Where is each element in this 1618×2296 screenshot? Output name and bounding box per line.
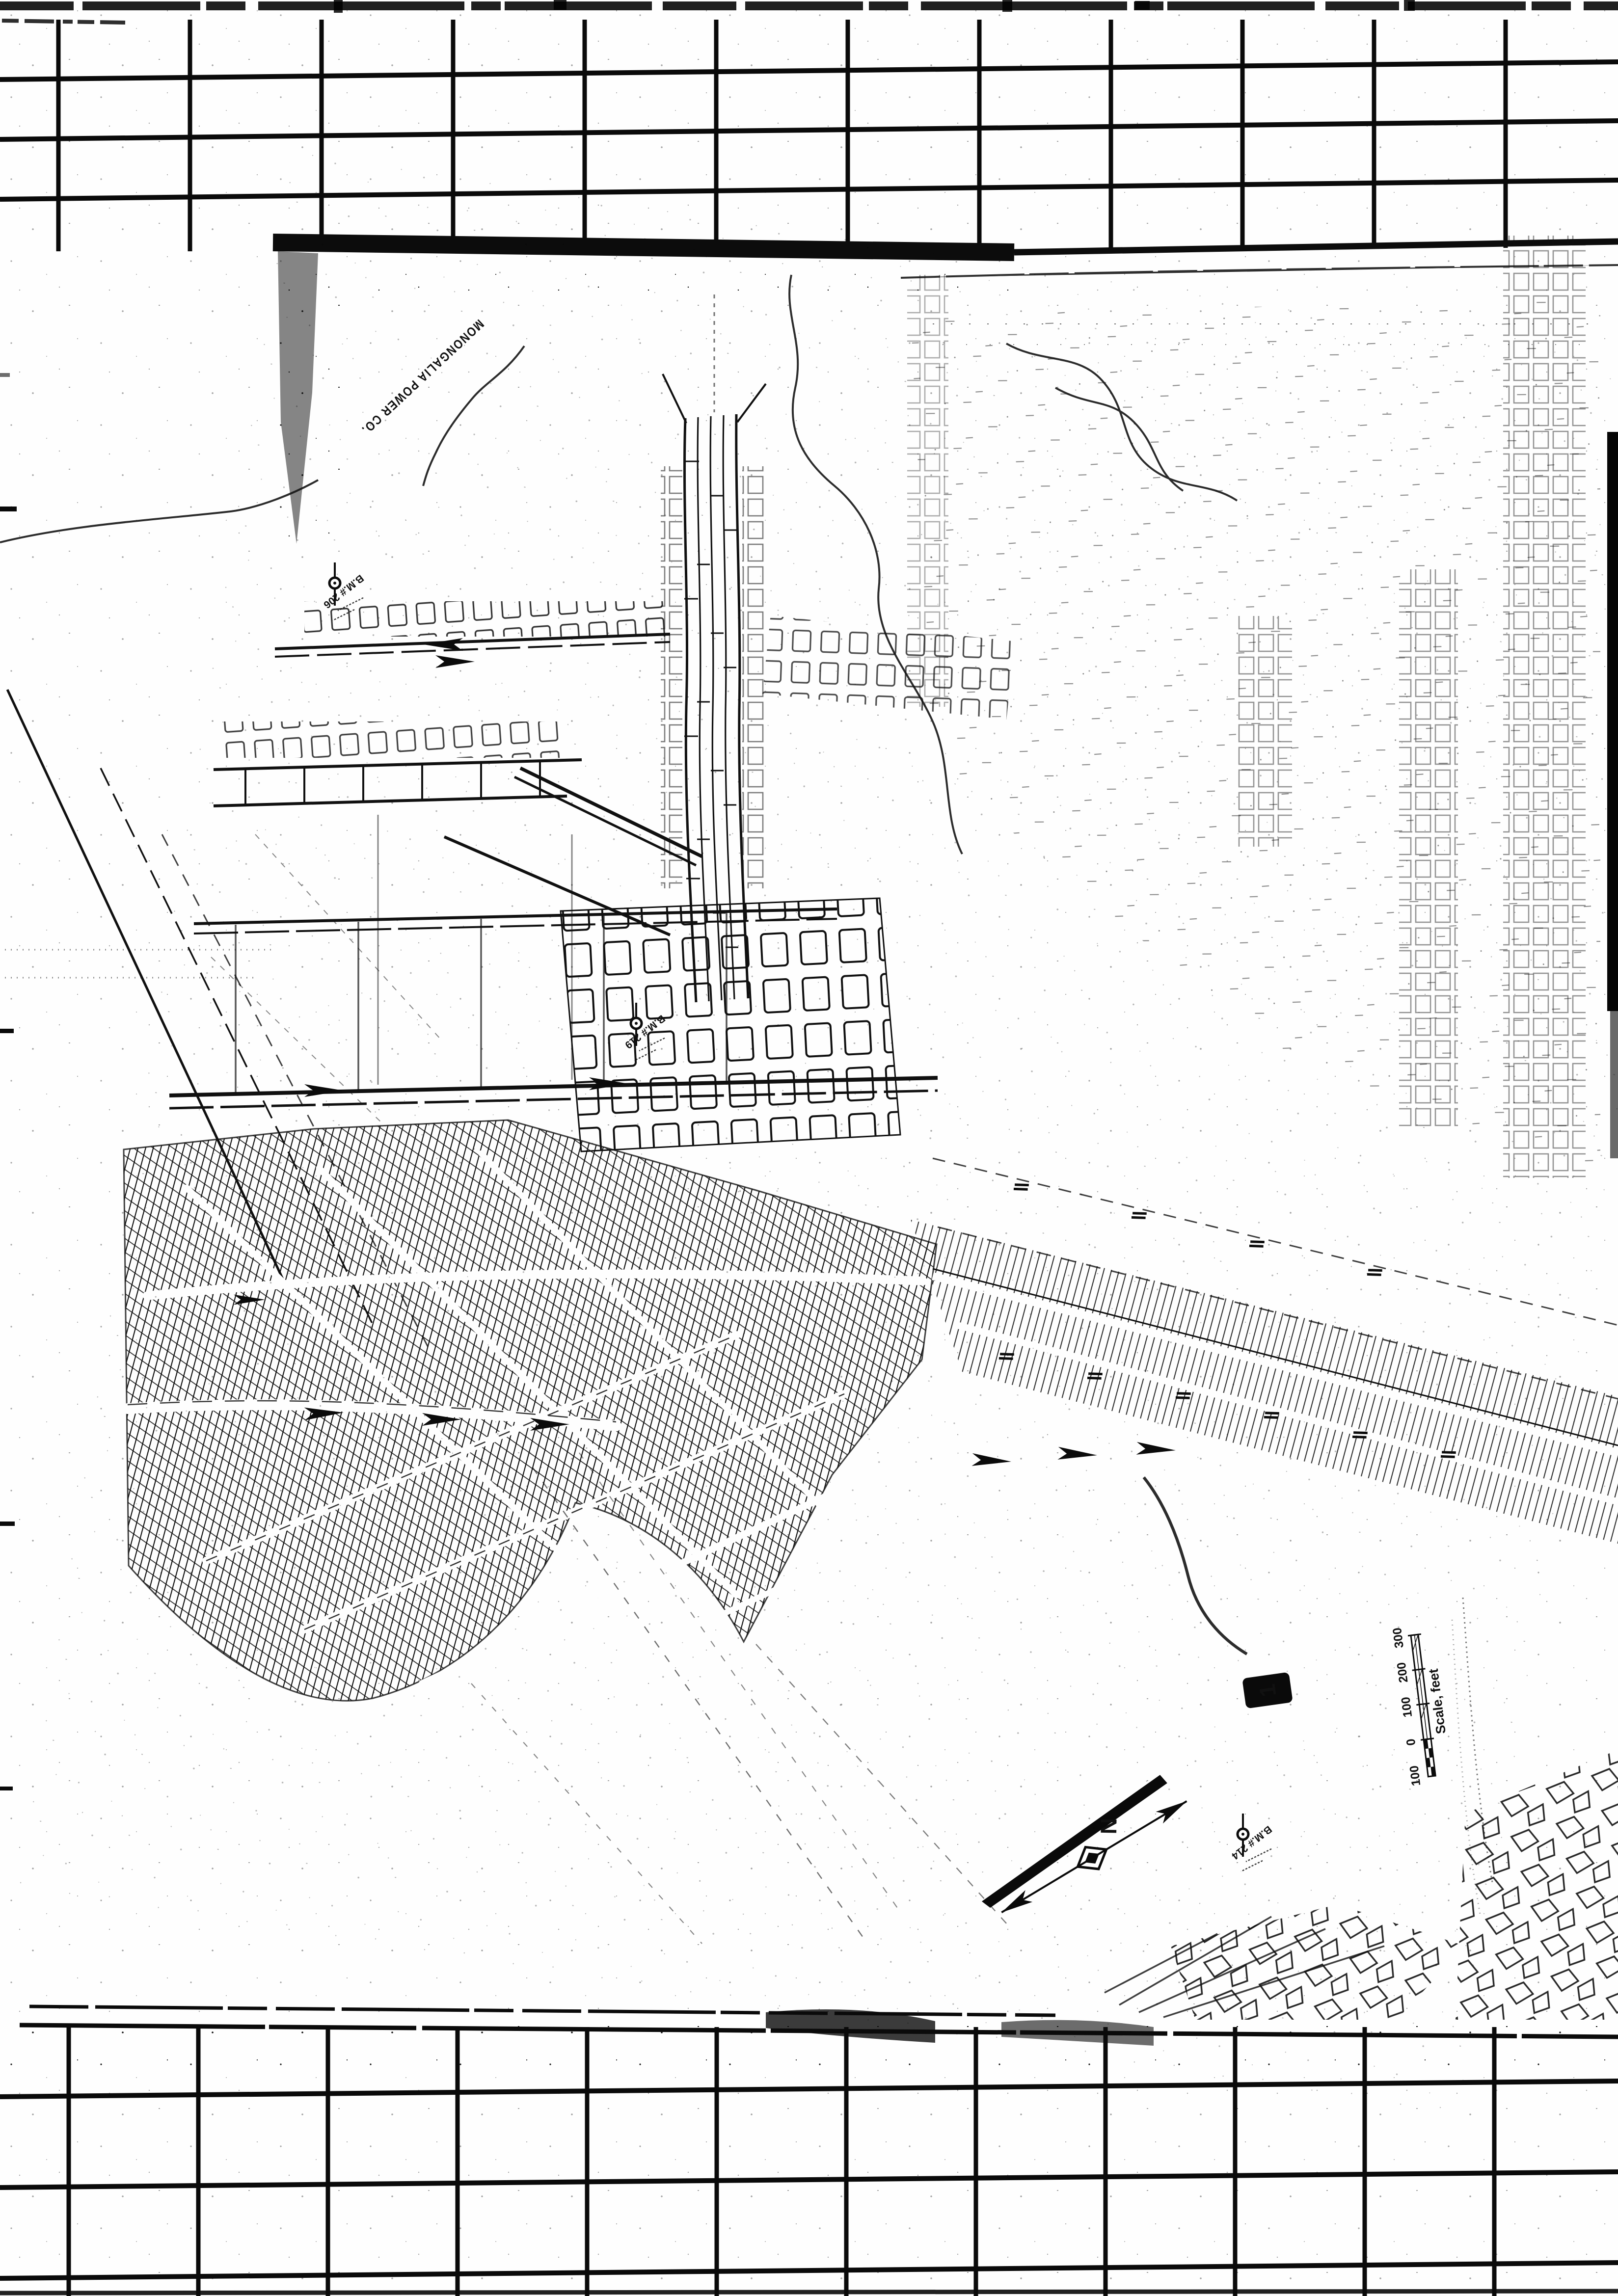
scanned-map-page: MONONGALIA POWER CO. (0, 0, 1618, 2296)
scan-noise-overlay (18, 141, 1618, 2116)
mine-map-scan: MONONGALIA POWER CO. (0, 0, 1618, 2296)
